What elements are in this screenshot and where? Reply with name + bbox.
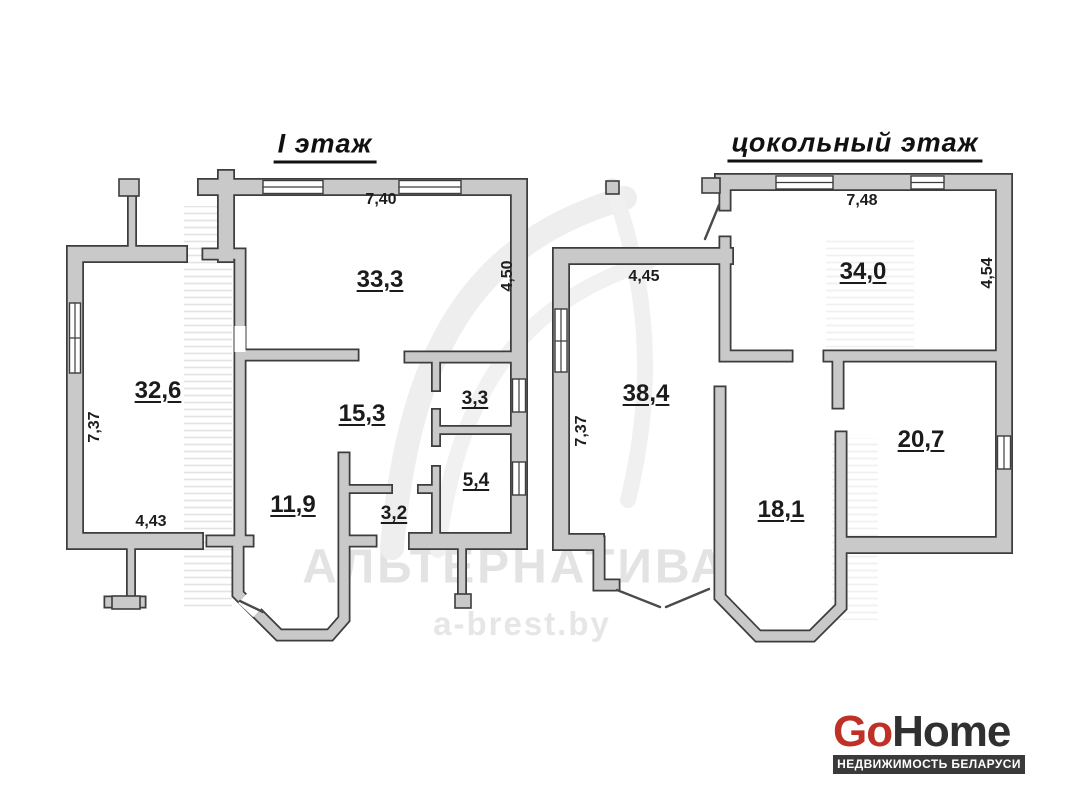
logo-go-part: Go <box>833 707 892 756</box>
dim-label-4-45: 4,45 <box>628 268 659 286</box>
chimney-block <box>119 179 139 196</box>
porch-foot-right <box>455 594 471 608</box>
room-area-11-9: 11,9 <box>270 491 315 519</box>
room-area-32-6: 32,6 <box>135 377 182 405</box>
dim-label-7-37-basement: 7,37 <box>573 415 591 446</box>
gohome-logo: GoHome НЕДВИЖИМОСТЬ БЕЛАРУСИ <box>833 710 1025 774</box>
logo-home-part: Home <box>892 707 1010 756</box>
dim-label-7-40: 7,40 <box>365 191 396 209</box>
gohome-logo-tagline: НЕДВИЖИМОСТЬ БЕЛАРУСИ <box>833 755 1025 774</box>
dim-label-7-37-left: 7,37 <box>86 411 104 442</box>
room-area-3-2: 3,2 <box>381 503 407 525</box>
small-pier-block <box>606 181 619 194</box>
room-area-5-4: 5,4 <box>463 470 489 492</box>
porch-foot-left <box>112 596 140 609</box>
dim-label-4-50: 4,50 <box>499 260 517 291</box>
room-area-18-1: 18,1 <box>758 496 805 524</box>
room-area-33-3: 33,3 <box>357 266 404 294</box>
plan-title-basement: цокольный этаж <box>727 128 982 163</box>
room-area-20-7: 20,7 <box>898 426 945 454</box>
staircase-hatch <box>184 206 914 620</box>
dim-label-4-43: 4,43 <box>135 513 166 531</box>
room-area-15-3: 15,3 <box>339 400 386 428</box>
floorplan-canvas: АЛЬТЕРНАТИВА a-brest.by <box>0 0 1068 800</box>
plan-title-first-floor: I этаж <box>274 129 377 164</box>
gohome-logo-text: GoHome <box>833 710 1025 754</box>
room-area-3-3: 3,3 <box>462 388 488 410</box>
room-area-38-4: 38,4 <box>623 380 670 408</box>
entry-stub-block <box>702 178 720 193</box>
dim-label-4-54: 4,54 <box>979 257 997 288</box>
room-area-34-0: 34,0 <box>840 258 887 286</box>
dim-label-7-48: 7,48 <box>846 192 877 210</box>
